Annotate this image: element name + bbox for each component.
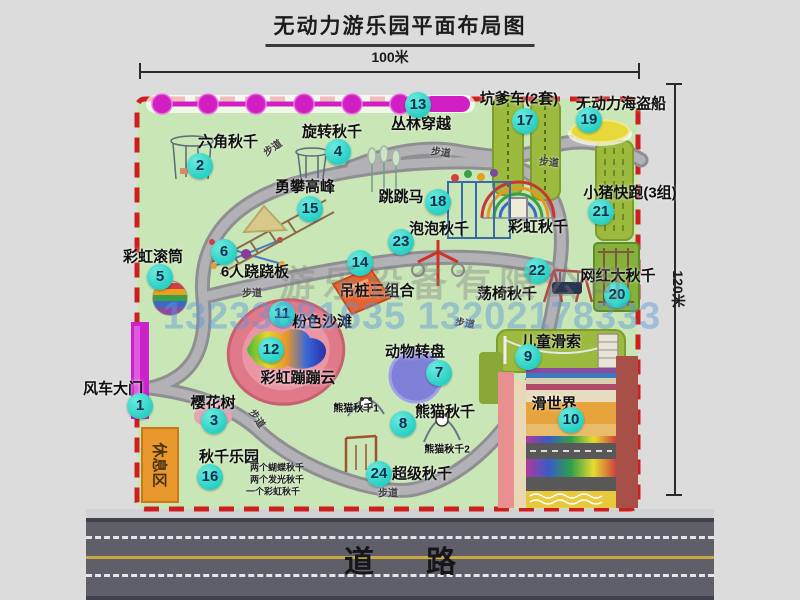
label-rotating-swing: 旋转秋千: [302, 121, 362, 142]
badge-rainbow-roller: 5: [147, 264, 173, 290]
label-brave-climb: 勇攀高峰: [275, 176, 335, 197]
watermark-phone: 13233881635 13202178333: [163, 296, 662, 339]
width-dimension-label: 100米: [371, 47, 408, 67]
slide-world-icon: [479, 352, 638, 508]
label-jumping-horse: 跳跳马: [378, 186, 423, 207]
label-animal-carousel: 动物转盘: [385, 341, 445, 362]
tick-mark: [666, 83, 682, 85]
label-panda-swing: 熊猫秋千: [415, 401, 475, 422]
road: 道路: [86, 518, 714, 600]
badge-six-person-seesaw: 6: [211, 239, 237, 265]
label-pit-cart: 坑爹车(2套): [480, 88, 558, 109]
swing-park-item-label: 一个彩虹秋千: [246, 485, 300, 498]
page-title: 无动力游乐园平面布局图: [266, 10, 535, 47]
label-rainbow-bounce-cloud: 彩虹蹦蹦云: [260, 367, 335, 388]
panda-swing-1-label: 熊猫秋千1: [333, 400, 379, 415]
screenshot-stage: 无动力游乐园平面布局图 100米 120米: [0, 0, 800, 600]
tick-mark: [666, 494, 682, 496]
rainbow-swing-icon: [482, 182, 554, 220]
tick-mark: [638, 63, 640, 79]
rest-area-label: 休息区: [150, 442, 171, 487]
panda-swing-2-label: 熊猫秋千2: [424, 441, 470, 456]
label-bubble-swing: 泡泡秋千: [409, 218, 469, 239]
badge-super-swing: 24: [366, 461, 392, 487]
label-super-swing: 超级秋千: [392, 463, 452, 484]
badge-kids-zipline: 9: [515, 344, 541, 370]
badge-rotating-swing: 4: [325, 139, 351, 165]
badge-pit-cart: 17: [512, 108, 538, 134]
badge-piggy-run: 21: [588, 199, 614, 225]
badge-brave-climb: 15: [297, 196, 323, 222]
walkway-label: 步道: [246, 406, 270, 431]
badge-animal-carousel: 7: [426, 360, 452, 386]
badge-cherry-tree: 3: [201, 408, 227, 434]
badge-jungle-crossing: 13: [405, 92, 431, 118]
walkway-label: 步道: [430, 142, 452, 160]
tick-mark: [139, 63, 141, 79]
badge-pirate-ship: 19: [576, 107, 602, 133]
badge-rainbow-bounce-cloud: 12: [258, 337, 284, 363]
road-label: 道路: [344, 537, 508, 581]
badge-panda-swing: 8: [390, 411, 416, 437]
badge-bubble-swing: 23: [388, 229, 414, 255]
sidewalk-strip: [86, 509, 714, 518]
badge-hexagon-swing: 2: [187, 153, 213, 179]
badge-jumping-horse: 18: [425, 189, 451, 215]
height-dimension-label: 120米: [668, 270, 688, 307]
badge-slide-world: 10: [558, 407, 584, 433]
walkway-label: 步道: [538, 153, 559, 170]
dimension-line-horizontal: [140, 71, 640, 73]
badge-windmill-gate: 1: [127, 393, 153, 419]
label-hexagon-swing: 六角秋千: [198, 131, 258, 152]
walkway-label: 步道: [260, 135, 285, 159]
badge-swing-park: 16: [197, 464, 223, 490]
label-rainbow-roller: 彩虹滚筒: [123, 246, 183, 267]
rainbow-swing-label: 彩虹秋千: [508, 216, 568, 237]
